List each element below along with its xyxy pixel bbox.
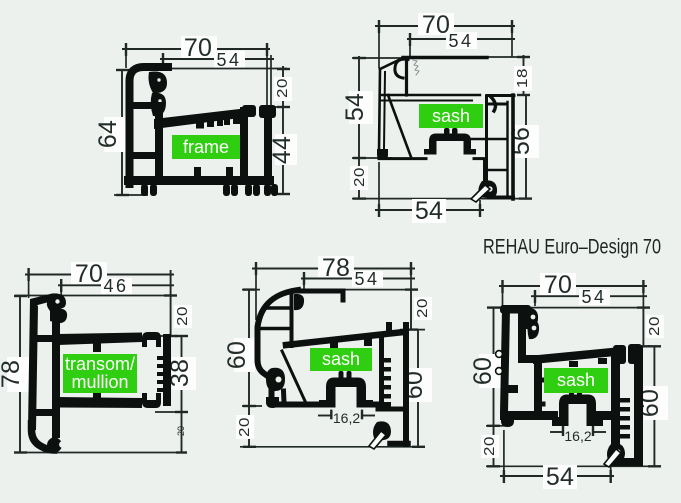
svg-text:20: 20: [174, 306, 191, 326]
svg-text:16,2: 16,2: [333, 410, 360, 426]
svg-text:54: 54: [415, 197, 443, 225]
svg-text:70: 70: [75, 260, 103, 288]
svg-text:60: 60: [469, 357, 497, 385]
svg-text:sash: sash: [432, 106, 470, 126]
svg-text:20: 20: [176, 426, 186, 436]
svg-text:54: 54: [217, 50, 242, 70]
svg-text:70: 70: [184, 34, 212, 62]
svg-text:mullion: mullion: [71, 372, 128, 392]
svg-text:18: 18: [514, 68, 531, 88]
svg-text:16,2: 16,2: [564, 428, 591, 444]
svg-text:frame: frame: [183, 137, 229, 157]
svg-text:54: 54: [341, 93, 369, 121]
svg-text:20: 20: [414, 298, 431, 318]
svg-text:REHAU Euro–Design 70: REHAU Euro–Design 70: [483, 236, 661, 259]
svg-text:20: 20: [351, 167, 368, 187]
svg-text:sash: sash: [557, 370, 595, 390]
svg-text:20: 20: [236, 417, 253, 437]
svg-text:46: 46: [104, 276, 129, 296]
svg-text:60: 60: [223, 341, 251, 369]
svg-text:54: 54: [449, 31, 474, 51]
svg-text:20: 20: [481, 436, 498, 456]
svg-text:54: 54: [355, 269, 380, 289]
svg-text:20: 20: [274, 78, 291, 98]
svg-text:transom/: transom/: [65, 354, 135, 374]
svg-text:sash: sash: [322, 349, 360, 369]
svg-text:20: 20: [646, 316, 663, 336]
svg-text:78: 78: [0, 360, 25, 388]
svg-text:54: 54: [546, 463, 574, 491]
svg-text:44: 44: [268, 136, 296, 164]
svg-text:70: 70: [544, 271, 572, 299]
svg-text:54: 54: [582, 287, 607, 307]
svg-text:70: 70: [422, 11, 450, 39]
svg-text:64: 64: [94, 120, 122, 148]
